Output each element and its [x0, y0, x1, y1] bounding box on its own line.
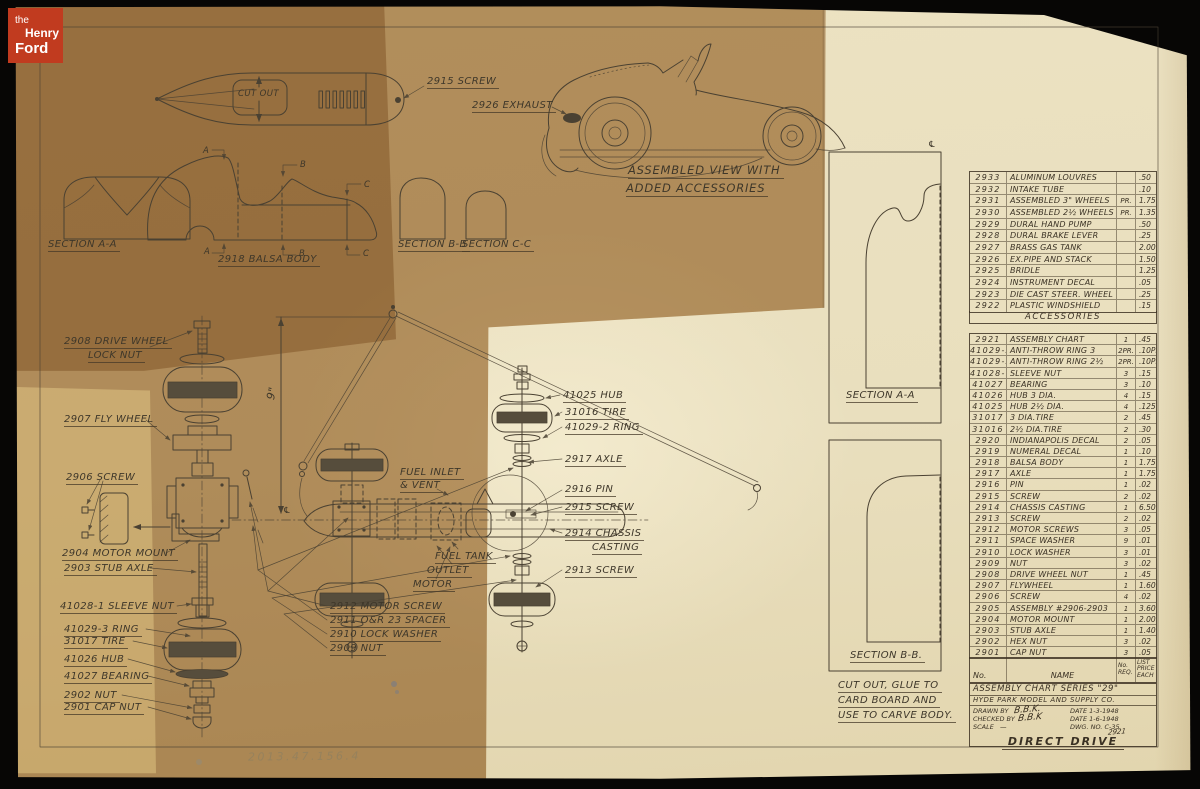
- part-price: .02: [1135, 591, 1156, 601]
- part-name: DIE CAST STEER. WHEEL: [1006, 289, 1116, 300]
- part-qty: 3: [1116, 368, 1135, 378]
- part-price: .01: [1135, 535, 1156, 545]
- drawing-label: 2915 SCREW: [427, 76, 499, 89]
- part-number: 2905: [970, 603, 1006, 613]
- part-price: .05: [1135, 277, 1156, 288]
- checked-by-label: CHECKED BY: [973, 715, 1015, 723]
- part-name: MOTOR SCREWS: [1006, 524, 1116, 534]
- drawing-label: OUTLET: [427, 565, 472, 578]
- header-req: No. REQ.: [1116, 658, 1135, 682]
- part-name: DURAL HAND PUMP: [1006, 219, 1116, 230]
- part-price: .10: [1135, 379, 1156, 389]
- part-number: 2926: [970, 254, 1006, 265]
- table-row: 2930 ASSEMBLED 2½ WHEELS PR. 1.35: [970, 207, 1156, 219]
- parts-table-header: No. NAME No. REQ. LIST PRICE EACH: [969, 657, 1157, 683]
- table-row: 41029-2 ANTI-THROW RING 2½ 2PR. .10PR.: [970, 356, 1156, 367]
- part-name: ASSEMBLY CHART: [1006, 334, 1116, 344]
- drawing-label: 2906 SCREW: [66, 472, 138, 485]
- table-row: 2918 BALSA BODY 1 1.75: [970, 457, 1156, 468]
- table-row: 2902 HEX NUT 3 .02: [970, 636, 1156, 647]
- part-qty: 2: [1116, 424, 1135, 434]
- part-name: SCREW: [1006, 591, 1116, 601]
- table-row: 2912 MOTOR SCREWS 3 .05: [970, 524, 1156, 535]
- drawing-label: CUT OUT, GLUE TO: [838, 680, 942, 693]
- part-qty: 2: [1116, 513, 1135, 523]
- part-number: 2917: [970, 468, 1006, 478]
- part-qty: 1: [1116, 569, 1135, 579]
- part-number: 2907: [970, 580, 1006, 590]
- part-unit: [1116, 277, 1135, 288]
- part-number: 2931: [970, 195, 1006, 206]
- table-row: 2919 NUMERAL DECAL 1 .10: [970, 446, 1156, 457]
- drawing-label: CASTING: [592, 542, 642, 555]
- part-number: 2909: [970, 558, 1006, 568]
- part-qty: 1: [1116, 614, 1135, 624]
- title-block-info: DRAWN BY B.B.K. DATE 1-3-1948 CHECKED BY…: [970, 706, 1156, 730]
- drawing-label: 41026 HUB: [64, 654, 127, 667]
- drawing-label: 41025 HUB: [563, 390, 626, 403]
- part-price: 1.25: [1135, 265, 1156, 276]
- header-name: NAME: [1006, 658, 1116, 682]
- part-price: 1.75: [1135, 468, 1156, 478]
- part-qty: 3: [1116, 547, 1135, 557]
- part-name: INDIANAPOLIS DECAL: [1006, 435, 1116, 445]
- part-number: 2924: [970, 277, 1006, 288]
- drawing-label: SECTION B-B.: [850, 650, 925, 663]
- drawing-label: C: [364, 180, 373, 191]
- part-qty: 1: [1116, 502, 1135, 512]
- part-qty: 1: [1116, 479, 1135, 489]
- part-price: 2.00: [1135, 614, 1156, 624]
- part-number: 2932: [970, 184, 1006, 195]
- table-row: 2917 AXLE 1 1.75: [970, 468, 1156, 479]
- part-price: .02: [1135, 636, 1156, 646]
- part-name: BEARING: [1006, 379, 1116, 389]
- part-number: 2902: [970, 636, 1006, 646]
- part-price: .02: [1135, 558, 1156, 568]
- part-number: 2930: [970, 207, 1006, 218]
- part-number: 2913: [970, 513, 1006, 523]
- part-price: .10: [1135, 446, 1156, 456]
- checked-by-signature: B.B.K: [1017, 712, 1042, 724]
- table-row: 2916 PIN 1 .02: [970, 479, 1156, 490]
- part-name: ANTI-THROW RING 2½: [1006, 356, 1116, 366]
- drawing-title: DIRECT DRIVE: [970, 730, 1156, 746]
- drawing-label: CUT OUT: [238, 89, 282, 100]
- part-number: 41028-1: [970, 368, 1006, 378]
- henry-ford-logo: the Henry Ford: [8, 8, 63, 63]
- part-number: 2918: [970, 457, 1006, 467]
- drawing-label: 2912 MOTOR SCREW: [330, 601, 445, 614]
- part-price: 1.40: [1135, 625, 1156, 635]
- part-unit: [1116, 172, 1135, 183]
- drawing-label: SECTION B-B: [398, 239, 470, 252]
- date-checked: DATE 1-6-1948: [1070, 715, 1119, 723]
- part-name: HUB 2½ DIA.: [1006, 401, 1116, 411]
- accessories-footer: ACCESSORIES: [969, 311, 1157, 324]
- part-price: .25: [1135, 289, 1156, 300]
- scale-label: SCALE: [973, 723, 994, 731]
- scale-value: —: [1000, 723, 1007, 731]
- part-price: 1.60: [1135, 580, 1156, 590]
- table-row: 41027 BEARING 3 .10: [970, 379, 1156, 390]
- part-unit: [1116, 289, 1135, 300]
- part-price: .02: [1135, 513, 1156, 523]
- part-number: 2912: [970, 524, 1006, 534]
- drawing-label: 2926 EXHAUST: [472, 100, 556, 113]
- part-price: .10: [1135, 184, 1156, 195]
- part-qty: 3: [1116, 379, 1135, 389]
- parts-table: 2921 ASSEMBLY CHART 1 .45 41029-3 ANTI-T…: [969, 333, 1157, 659]
- part-price: 1.35: [1135, 207, 1156, 218]
- part-price: .15: [1135, 368, 1156, 378]
- accessories-table: 2933 ALUMINUM LOUVRES .50 2932 INTAKE TU…: [969, 171, 1157, 313]
- part-qty: 1: [1116, 625, 1135, 635]
- table-row: 41025 HUB 2½ DIA. 4 .125: [970, 401, 1156, 412]
- drawing-label: 2910 LOCK WASHER: [330, 629, 441, 642]
- part-name: DURAL BRAKE LEVER: [1006, 230, 1116, 241]
- drawing-label: A: [204, 247, 213, 258]
- drawing-label: 31017 TIRE: [64, 636, 128, 649]
- part-number: 2929: [970, 219, 1006, 230]
- part-qty: 1: [1116, 580, 1135, 590]
- drawing-label: MOTOR: [413, 579, 455, 592]
- part-number: 2916: [970, 479, 1006, 489]
- table-row: 2908 DRIVE WHEEL NUT 1 .45: [970, 569, 1156, 580]
- part-qty: 2: [1116, 491, 1135, 501]
- part-name: EX.PIPE AND STACK: [1006, 254, 1116, 265]
- part-number: 2914: [970, 502, 1006, 512]
- part-price: .45: [1135, 412, 1156, 422]
- drawing-label: ASSEMBLED VIEW WITH: [628, 163, 784, 179]
- part-number: 2911: [970, 535, 1006, 545]
- table-row: 2913 SCREW 2 .02: [970, 513, 1156, 524]
- part-number: 31016: [970, 424, 1006, 434]
- part-name: SCREW: [1006, 513, 1116, 523]
- part-qty: 2PR.: [1116, 356, 1135, 366]
- part-name: SLEEVE NUT: [1006, 368, 1116, 378]
- table-row: 2931 ASSEMBLED 3" WHEELS PR. 1.75: [970, 195, 1156, 207]
- part-name: INSTRUMENT DECAL: [1006, 277, 1116, 288]
- part-name: NUT: [1006, 558, 1116, 568]
- part-unit: [1116, 254, 1135, 265]
- drawing-label: 2917 AXLE: [565, 454, 626, 467]
- part-number: 31017: [970, 412, 1006, 422]
- drawing-label: 41027 BEARING: [64, 671, 152, 684]
- part-price: .45: [1135, 569, 1156, 579]
- part-name: STUB AXLE: [1006, 625, 1116, 635]
- table-row: 2914 CHASSIS CASTING 1 6.50: [970, 502, 1156, 513]
- part-name: BALSA BODY: [1006, 457, 1116, 467]
- part-price: 1.75: [1135, 457, 1156, 467]
- part-name: DRIVE WHEEL NUT: [1006, 569, 1116, 579]
- part-name: 2½ DIA.TIRE: [1006, 424, 1116, 434]
- header-no: No.: [970, 658, 1006, 682]
- part-qty: 1: [1116, 468, 1135, 478]
- table-row: 2910 LOCK WASHER 3 .01: [970, 547, 1156, 558]
- table-row: 2924 INSTRUMENT DECAL .05: [970, 277, 1156, 289]
- part-number: 2904: [970, 614, 1006, 624]
- table-row: 31017 3 DIA.TIRE 2 .45: [970, 412, 1156, 423]
- drawing-label: 2901 CAP NUT: [64, 702, 144, 715]
- series-title: ASSEMBLY CHART SERIES "29": [970, 684, 1156, 696]
- part-price: .10PR.: [1135, 345, 1156, 355]
- part-name: BRIDLE: [1006, 265, 1116, 276]
- header-price: LIST PRICE EACH: [1135, 658, 1156, 682]
- drawing-label: SECTION A-A: [48, 239, 120, 252]
- table-row: 2929 DURAL HAND PUMP .50: [970, 219, 1156, 231]
- part-price: .15: [1135, 390, 1156, 400]
- part-qty: 3: [1116, 524, 1135, 534]
- part-number: 2906: [970, 591, 1006, 601]
- part-qty: 9: [1116, 535, 1135, 545]
- part-unit: [1116, 242, 1135, 253]
- drawing-label: FUEL TANK: [435, 551, 496, 564]
- part-price: .30: [1135, 424, 1156, 434]
- table-row: 2903 STUB AXLE 1 1.40: [970, 625, 1156, 636]
- part-qty: 1: [1116, 334, 1135, 344]
- table-row: 41028-1 SLEEVE NUT 3 .15: [970, 368, 1156, 379]
- table-row: 2925 BRIDLE 1.25: [970, 265, 1156, 277]
- part-name: HEX NUT: [1006, 636, 1116, 646]
- part-number: 2903: [970, 625, 1006, 635]
- part-price: .125: [1135, 401, 1156, 411]
- part-name: ALUMINUM LOUVRES: [1006, 172, 1116, 183]
- part-name: ANTI-THROW RING 3: [1006, 345, 1116, 355]
- table-row: 2906 SCREW 4 .02: [970, 591, 1156, 602]
- drawing-label: 2908 DRIVE WHEEL: [64, 336, 172, 349]
- scanned-blueprint-page: 2915 SCREW 2926 EXHAUST ASSEMBLED VIEW W…: [0, 0, 1200, 789]
- date-drawn: DATE 1-3-1948: [1070, 707, 1119, 715]
- part-name: LOCK WASHER: [1006, 547, 1116, 557]
- drawing-label: USE TO CARVE BODY.: [838, 710, 956, 723]
- drawing-label: SECTION C-C: [462, 239, 534, 252]
- table-row: 31016 2½ DIA.TIRE 2 .30: [970, 424, 1156, 435]
- table-row: 2907 FLYWHEEL 1 1.60: [970, 580, 1156, 591]
- part-price: .01: [1135, 547, 1156, 557]
- part-number: 2908: [970, 569, 1006, 579]
- drawing-label: 2914 CHASSIS: [565, 528, 644, 541]
- part-price: .45: [1135, 334, 1156, 344]
- part-number: 2928: [970, 230, 1006, 241]
- part-price: .05: [1135, 435, 1156, 445]
- part-price: .50: [1135, 219, 1156, 230]
- part-unit: [1116, 184, 1135, 195]
- part-name: CHASSIS CASTING: [1006, 502, 1116, 512]
- part-price: .02: [1135, 479, 1156, 489]
- table-row: 41026 HUB 3 DIA. 4 .15: [970, 390, 1156, 401]
- title-block: ASSEMBLY CHART SERIES "29" HYDE PARK MOD…: [969, 683, 1157, 747]
- table-row: 2920 INDIANAPOLIS DECAL 2 .05: [970, 435, 1156, 446]
- part-name: 3 DIA.TIRE: [1006, 412, 1116, 422]
- part-price: 1.50: [1135, 254, 1156, 265]
- part-qty: 1: [1116, 457, 1135, 467]
- part-qty: 4: [1116, 401, 1135, 411]
- part-name: SPACE WASHER: [1006, 535, 1116, 545]
- part-qty: 1: [1116, 603, 1135, 613]
- drawing-label: LOCK NUT: [88, 350, 145, 363]
- drawing-label: 9": [264, 383, 281, 402]
- drawn-by-label: DRAWN BY: [973, 707, 1009, 715]
- part-unit: [1116, 219, 1135, 230]
- part-price: .25: [1135, 230, 1156, 241]
- part-name: BRASS GAS TANK: [1006, 242, 1116, 253]
- drawing-label: ADDED ACCESSORIES: [626, 181, 768, 197]
- part-number: 41029-3: [970, 345, 1006, 355]
- part-name: AXLE: [1006, 468, 1116, 478]
- drawing-label: 2903 STUB AXLE: [64, 563, 157, 576]
- drawing-label: CARD BOARD AND: [838, 695, 940, 708]
- part-number: 41025: [970, 401, 1006, 411]
- drawing-label: FUEL INLET: [400, 467, 464, 480]
- part-name: ASSEMBLED 2½ WHEELS: [1006, 207, 1116, 218]
- company-name: HYDE PARK MODEL AND SUPPLY CO.: [970, 696, 1156, 706]
- part-name: ASSEMBLED 3" WHEELS: [1006, 195, 1116, 206]
- part-qty: 3: [1116, 558, 1135, 568]
- table-row: 2904 MOTOR MOUNT 1 2.00: [970, 614, 1156, 625]
- drawing-label: 2907 FLY WHEEL: [64, 414, 157, 427]
- drawing-label: ℄: [283, 506, 294, 517]
- part-number: 2919: [970, 446, 1006, 456]
- drawing-label: 2916 PIN: [565, 484, 616, 497]
- table-row: 2923 DIE CAST STEER. WHEEL .25: [970, 289, 1156, 301]
- drawing-label: A: [203, 146, 212, 157]
- part-number: 2910: [970, 547, 1006, 557]
- table-row: 2933 ALUMINUM LOUVRES .50: [970, 172, 1156, 184]
- part-qty: 2PR.: [1116, 345, 1135, 355]
- logo-ford: Ford: [15, 41, 48, 56]
- drawing-label: 41028-1 SLEEVE NUT: [60, 601, 177, 614]
- table-row: 2909 NUT 3 .02: [970, 558, 1156, 569]
- part-price: .02: [1135, 491, 1156, 501]
- part-price: .05: [1135, 524, 1156, 534]
- table-row: 2911 SPACE WASHER 9 .01: [970, 535, 1156, 546]
- drawing-label: C: [363, 249, 372, 260]
- drawing-label: B: [299, 249, 308, 260]
- part-unit: PR.: [1116, 207, 1135, 218]
- logo-henry: Henry: [25, 27, 59, 39]
- part-name: HUB 3 DIA.: [1006, 390, 1116, 400]
- drawing-label: ℄: [928, 140, 939, 151]
- accession-number: 2013.47.156.4: [248, 749, 361, 763]
- part-price: 6.50: [1135, 502, 1156, 512]
- part-price: 2.00: [1135, 242, 1156, 253]
- drawing-label: SECTION A-A: [846, 390, 918, 403]
- part-number: 2927: [970, 242, 1006, 253]
- part-unit: [1116, 265, 1135, 276]
- drawing-label: 2904 MOTOR MOUNT: [62, 548, 178, 561]
- part-qty: 2: [1116, 412, 1135, 422]
- part-qty: 4: [1116, 591, 1135, 601]
- table-row: 2932 INTAKE TUBE .10: [970, 184, 1156, 196]
- drawing-label: 2913 SCREW: [565, 565, 637, 578]
- part-qty: 1: [1116, 446, 1135, 456]
- table-row: 2915 SCREW 2 .02: [970, 491, 1156, 502]
- part-number: 41029-2: [970, 356, 1006, 366]
- part-name: PIN: [1006, 479, 1116, 489]
- part-name: ASSEMBLY #2906-2903: [1006, 603, 1116, 613]
- part-number: 41027: [970, 379, 1006, 389]
- part-number: 2925: [970, 265, 1006, 276]
- part-number: 2921: [970, 334, 1006, 344]
- part-number: 2920: [970, 435, 1006, 445]
- logo-the: the: [15, 16, 29, 26]
- table-row: 2905 ASSEMBLY #2906-2903 1 3.60: [970, 603, 1156, 614]
- drawing-label: B: [300, 160, 309, 171]
- part-number: 41026: [970, 390, 1006, 400]
- part-name: INTAKE TUBE: [1006, 184, 1116, 195]
- drawing-number-sub: 2921: [1108, 727, 1127, 737]
- part-qty: 2: [1116, 435, 1135, 445]
- part-unit: PR.: [1116, 195, 1135, 206]
- drawing-label: 2915 SCREW: [565, 502, 637, 515]
- part-price: 1.75: [1135, 195, 1156, 206]
- part-name: FLYWHEEL: [1006, 580, 1116, 590]
- part-price: 3.60: [1135, 603, 1156, 613]
- table-row: 2928 DURAL BRAKE LEVER .25: [970, 230, 1156, 242]
- part-name: MOTOR MOUNT: [1006, 614, 1116, 624]
- part-number: 2915: [970, 491, 1006, 501]
- drawing-label: 2911 O&R 23 SPACER: [330, 615, 450, 628]
- drawing-label: 2909 NUT: [330, 643, 386, 656]
- table-row: 2921 ASSEMBLY CHART 1 .45: [970, 334, 1156, 345]
- part-qty: 3: [1116, 636, 1135, 646]
- table-row: 2927 BRASS GAS TANK 2.00: [970, 242, 1156, 254]
- part-price: .50: [1135, 172, 1156, 183]
- drawing-label: 41029-2 RING: [565, 422, 643, 435]
- table-row: 2926 EX.PIPE AND STACK 1.50: [970, 254, 1156, 266]
- part-name: NUMERAL DECAL: [1006, 446, 1116, 456]
- table-row: 41029-3 ANTI-THROW RING 3 2PR. .10PR.: [970, 345, 1156, 356]
- part-price: .10PR.: [1135, 356, 1156, 366]
- part-number: 2923: [970, 289, 1006, 300]
- part-name: SCREW: [1006, 491, 1116, 501]
- part-number: 2933: [970, 172, 1006, 183]
- part-qty: 4: [1116, 390, 1135, 400]
- part-unit: [1116, 230, 1135, 241]
- drawing-label: & VENT: [400, 480, 443, 493]
- drawing-label: 31016 TIRE: [565, 407, 629, 420]
